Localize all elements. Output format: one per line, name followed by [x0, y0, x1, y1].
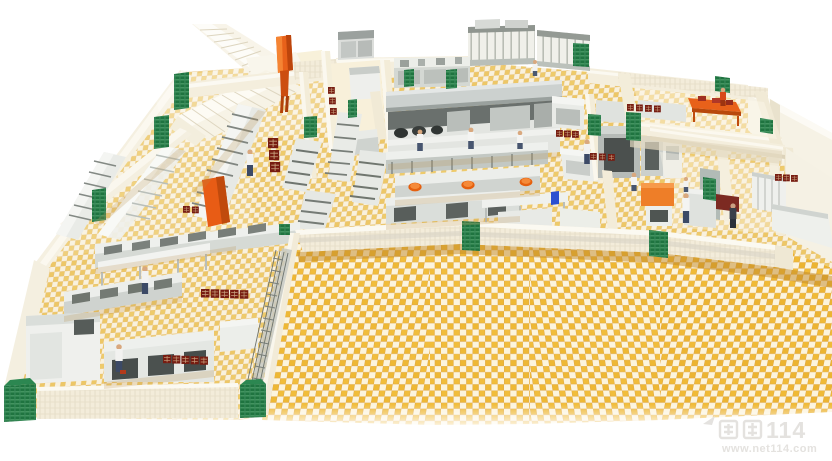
svg-text:114: 114	[766, 417, 806, 443]
svg-text:www.net114.com: www.net114.com	[721, 443, 817, 455]
